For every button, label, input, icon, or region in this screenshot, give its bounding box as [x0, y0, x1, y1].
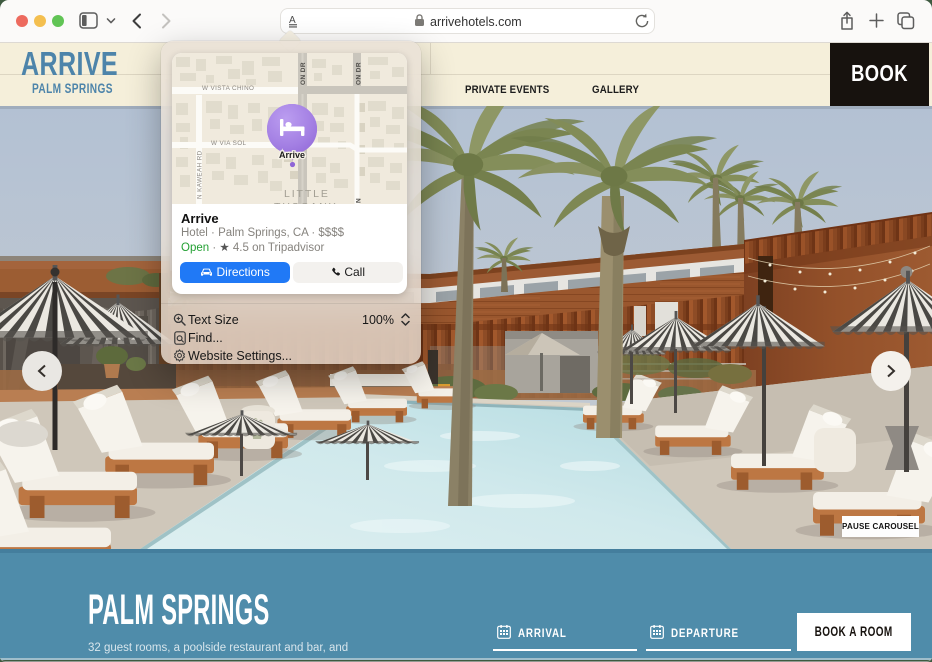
svg-text:ON DR: ON DR: [300, 62, 307, 85]
svg-text:W VIA SOL: W VIA SOL: [211, 140, 247, 147]
svg-text:LITTLE: LITTLE: [284, 188, 330, 200]
svg-text:N KAWEAH RD: N KAWEAH RD: [197, 150, 204, 199]
svg-text:Arrive: Arrive: [279, 150, 305, 160]
svg-text:TUSCANY: TUSCANY: [274, 201, 337, 204]
svg-text:N: N: [356, 198, 363, 203]
svg-text:ON DR: ON DR: [356, 62, 363, 85]
svg-text:W VISTA CHINO: W VISTA CHINO: [202, 85, 254, 92]
